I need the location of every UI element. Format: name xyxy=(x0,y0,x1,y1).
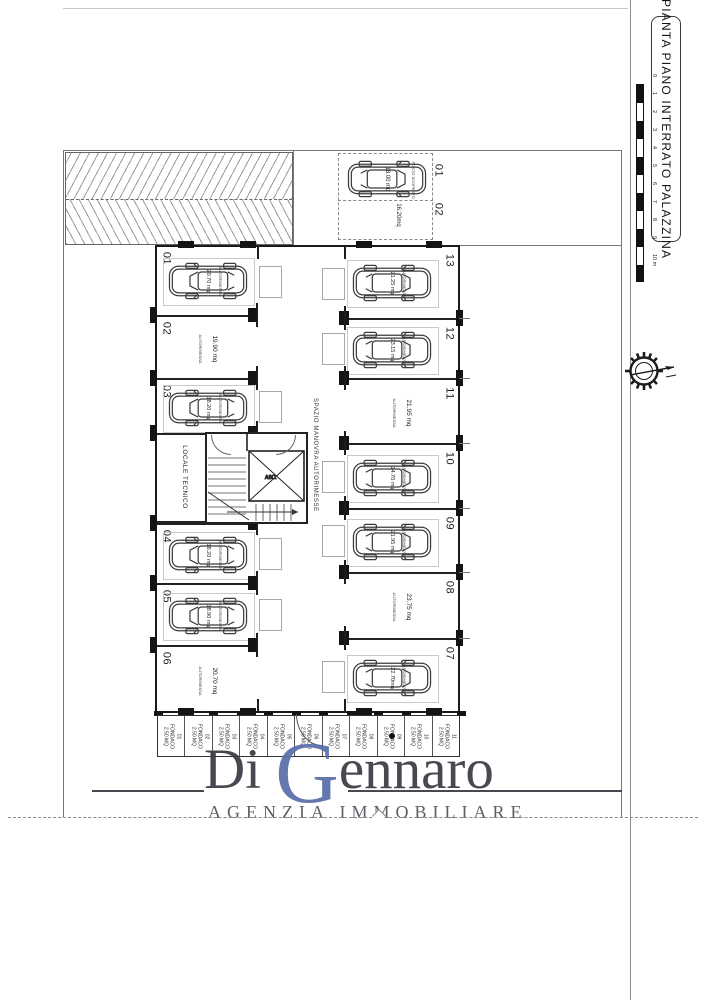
site-boundary-left xyxy=(63,150,64,817)
drawing-sheet: PIANTA PIANO INTERRATO PALAZZINA 0123456… xyxy=(0,0,707,1000)
corridor-wall-stub xyxy=(344,431,346,455)
garage-room: 09 21.95 mqAUTORIMESSA xyxy=(345,508,458,572)
garage-door-leaf xyxy=(259,266,282,298)
garage-area: 21.95 mq xyxy=(403,385,413,441)
corridor-wall-stub xyxy=(344,626,346,650)
garage-number: 02 xyxy=(160,318,173,340)
logo-subtitle: AGENZIA IMMOBILIARE xyxy=(208,802,508,823)
garage-room: 07 22.70mqAUTORIMESSA xyxy=(345,638,458,713)
outdoor-spot-number: 01 xyxy=(432,160,445,182)
wall-pier xyxy=(356,241,372,248)
dimension-tick xyxy=(459,638,470,639)
garage-number: 11 xyxy=(443,383,456,405)
dimension-tick xyxy=(459,572,470,573)
garage-type-label: AUTORIMESSA xyxy=(218,599,223,634)
dimension-tick xyxy=(459,378,470,379)
scale-tick-label: 0 xyxy=(651,74,657,92)
ramp-hatch-upper xyxy=(66,153,292,199)
wall-pier xyxy=(240,241,256,248)
garage-type-label: AUTORIMESSA xyxy=(402,460,407,495)
scale-tick-label: 5 xyxy=(651,164,657,182)
garage-number: 09 xyxy=(443,513,456,535)
garage-door-leaf xyxy=(322,525,345,557)
site-line-mid xyxy=(460,245,621,246)
garage-type-label: AUTORIMESSA xyxy=(218,264,223,299)
scale-bar xyxy=(636,84,644,282)
garage-area: 24.70 mq xyxy=(387,450,397,506)
dimension-tick xyxy=(459,318,470,319)
logo-wordmark: Di Gennaro xyxy=(204,740,494,804)
wall-pier xyxy=(150,637,157,653)
garage-room: 1121.95 mqAUTORIMESSA xyxy=(345,378,458,443)
garage-number: 13 xyxy=(443,250,456,272)
garage-room: 0823.75 mqAUTORIMESSA xyxy=(345,572,458,638)
dimension-tick xyxy=(459,508,470,509)
garage-type-label: AUTORIMESSA xyxy=(218,538,223,573)
logo-rule-left xyxy=(92,790,204,792)
garage-area: 18.20 mq xyxy=(203,380,213,436)
ramp-center-line xyxy=(66,199,292,200)
wall-pier xyxy=(178,241,194,248)
scale-tick-label: 10 m xyxy=(651,254,657,272)
garage-number: 07 xyxy=(443,643,456,665)
garage-area: 21.95 mq xyxy=(387,514,397,570)
garage-type-label: AUTORIMESSA xyxy=(402,265,407,300)
garage-area: 18.20 mq xyxy=(203,527,213,583)
garage-type-label: AUTORIMESSA xyxy=(197,664,202,699)
logo-rule-right xyxy=(348,790,622,792)
corridor-wall-stub xyxy=(256,633,258,657)
outdoor-spot-number: 02 xyxy=(432,199,445,221)
garage-number: 10 xyxy=(443,448,456,470)
scale-tick-label: 2 xyxy=(651,110,657,128)
garage-door-leaf xyxy=(322,333,345,365)
drawing-title: PIANTA PIANO INTERRATO PALAZZINA xyxy=(659,0,673,259)
garage-area: 20.70 mq xyxy=(203,253,213,309)
wall-pier xyxy=(356,708,372,715)
corridor-wall-stub xyxy=(256,571,258,595)
garage-door-leaf xyxy=(322,268,345,300)
garage-type-label: AUTORIMESSA xyxy=(391,590,396,625)
dimension-tick xyxy=(459,443,470,444)
garage-room: 01 20.70 mqAUTORIMESSA xyxy=(157,247,258,315)
garage-room: 12 23.15 mqAUTORIMESSA xyxy=(345,318,458,378)
ramp-hatch-lower xyxy=(66,199,292,245)
garage-door-leaf xyxy=(259,599,282,631)
garage-type-label: AUTORIMESSA xyxy=(391,395,396,430)
garage-area: 23.75 mq xyxy=(403,579,413,635)
wall-pier xyxy=(150,370,157,386)
garage-number: 08 xyxy=(443,577,456,599)
garage-type-label: AUTORIMESSA xyxy=(402,525,407,560)
garage-type-label: AUTORIMESSA xyxy=(402,660,407,695)
scale-tick-label: 9 xyxy=(651,236,657,254)
garage-number: 06 xyxy=(160,648,173,670)
wall-pier xyxy=(150,575,157,591)
garage-type-label: AUTORIMESSA xyxy=(218,390,223,425)
scale-tick-label: 6 xyxy=(651,182,657,200)
garage-door-leaf xyxy=(259,538,282,570)
garage-room: 03 18.20 mqAUTORIMESSA xyxy=(157,378,258,433)
corridor-wall-stub xyxy=(257,699,259,713)
sheet-top-rule xyxy=(63,8,628,9)
scale-tick-label: 8 xyxy=(651,218,657,236)
garage-area: 19.90 mq xyxy=(209,321,219,377)
corridor-wall-stub xyxy=(344,366,346,390)
garage-area: 23.15 mq xyxy=(387,322,397,378)
tech-room-label: LOCALE TECNICO xyxy=(178,432,188,522)
scale-tick-label: 7 xyxy=(651,200,657,218)
logo-prefix: Di xyxy=(204,738,275,801)
corridor-wall-stub xyxy=(256,366,258,390)
corridor-wall-stub xyxy=(344,560,346,584)
garage-area: 21.25 mq xyxy=(387,255,397,311)
titleblock-divider xyxy=(630,0,631,1000)
garage-door-leaf xyxy=(322,461,345,493)
outdoor-spot-area: 16.20mq xyxy=(393,187,403,243)
dashed-boundary-line xyxy=(8,817,698,818)
garage-room: 10 24.70 mqAUTORIMESSA xyxy=(345,443,458,508)
scale-tick-label: 3 xyxy=(651,128,657,146)
corridor-wall-stub xyxy=(344,245,346,259)
agency-logo: Di Gennaro AGENZIA IMMOBILIARE xyxy=(88,738,628,823)
garage-room: 05 18.90 mqAUTORIMESSA xyxy=(157,583,258,645)
wall-pier xyxy=(150,307,157,323)
outdoor-spot-area: 18.00 mq xyxy=(382,151,392,207)
garage-room: 0219.90 mqAUTORIMESSA xyxy=(157,315,258,378)
ramp-edge-line xyxy=(293,150,294,245)
site-boundary-right xyxy=(621,150,622,817)
garage-door-leaf xyxy=(259,391,282,423)
garage-room: 0620.70 mqAUTORIMESSA xyxy=(157,645,258,713)
garage-room: 13 21.25 mqAUTORIMESSA xyxy=(345,247,458,318)
garage-area: 22.70mq xyxy=(387,650,397,706)
site-boundary-top xyxy=(63,150,621,151)
corridor-wall-stub xyxy=(256,303,258,327)
wall-pier xyxy=(150,515,157,531)
garage-room: 04 18.20 mqAUTORIMESSA xyxy=(157,523,258,583)
garage-type-label: AUTORIMESSA xyxy=(402,333,407,368)
corridor-wall-stub xyxy=(344,496,346,520)
wall-pier xyxy=(426,241,442,248)
wall-pier xyxy=(150,425,157,441)
garage-door-leaf xyxy=(322,661,345,693)
garage-number: 12 xyxy=(443,323,456,345)
corridor-wall-stub xyxy=(344,306,346,330)
logo-initial: G xyxy=(275,725,339,822)
garage-area: 18.90 mq xyxy=(203,588,213,644)
scale-tick-label: 4 xyxy=(651,146,657,164)
corridor-label: SPAZIO MANOVRA AUTORIMESSE xyxy=(309,398,318,548)
outdoor-spot-note: POSTO SCOPERTO xyxy=(411,162,416,197)
corridor-wall-stub xyxy=(257,245,259,259)
garage-area: 20.70 mq xyxy=(209,653,219,709)
garage-type-label: AUTORIMESSA xyxy=(197,331,202,366)
scale-tick-label: 1 xyxy=(651,92,657,110)
elevator-label: ASC. xyxy=(265,475,277,481)
car-ramp xyxy=(65,152,293,245)
